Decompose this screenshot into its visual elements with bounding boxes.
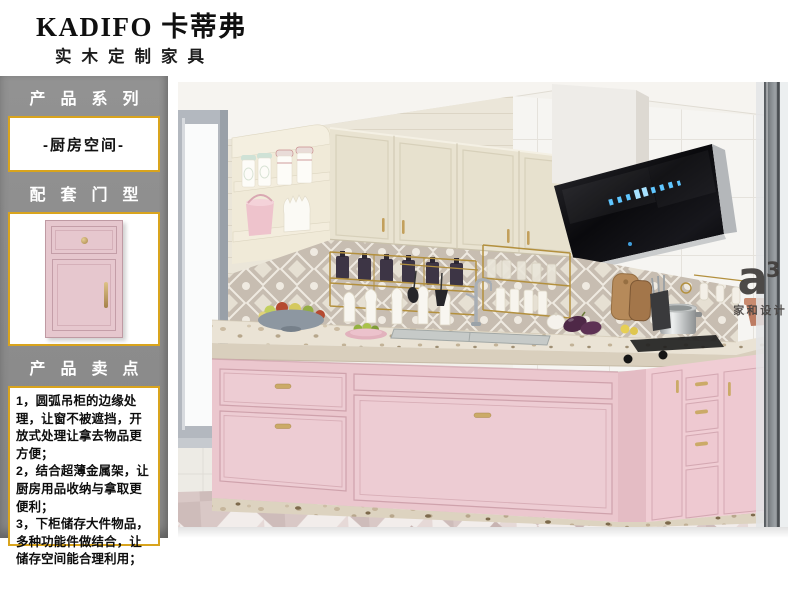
lemon xyxy=(621,325,630,334)
page: KADIFO 卡蒂弗 实木定制家具 产品系列 -厨房空间- 配套门型 产品卖点 … xyxy=(0,0,800,600)
door-drawer xyxy=(51,226,117,254)
pink-bucket xyxy=(246,195,274,236)
photo-bottom-shadow xyxy=(178,527,788,538)
white-vase xyxy=(284,195,311,232)
selling-point-1: 1，圆弧吊柜的边缘处理，让窗不被遮挡，开放式处理让拿去物品更方便； xyxy=(16,393,152,463)
series-box: -厨房空间- xyxy=(8,116,160,172)
series-value: -厨房空间- xyxy=(43,134,125,155)
door-thumbnail xyxy=(45,220,123,338)
door-panel xyxy=(52,259,116,331)
kitchen-scene xyxy=(178,82,788,527)
section-title-door-type: 配套门型 xyxy=(0,181,168,205)
designer-watermark: a3 家和设计 xyxy=(720,256,798,318)
kettle xyxy=(547,315,565,330)
selling-point-3: 3，下柜储存大件物品，多种功能件做结合，让储存空间能合理利用； xyxy=(16,516,152,569)
door-knob xyxy=(81,237,88,244)
watermark-logo: a3 xyxy=(720,256,798,301)
door-panel-inset xyxy=(57,264,111,326)
kitchen-photo xyxy=(178,82,788,527)
corner-shelf xyxy=(232,125,330,264)
sidebar: 产品系列 -厨房空间- 配套门型 产品卖点 1，圆弧吊柜的边缘处理，让窗不被遮挡… xyxy=(0,76,168,538)
watermark-letter: a xyxy=(738,252,766,305)
selling-point-2: 2，结合超薄金属架，让厨房用品收纳与拿取更便利； xyxy=(16,463,152,516)
selling-points-box: 1，圆弧吊柜的边缘处理，让窗不被遮挡，开放式处理让拿去物品更方便； 2，结合超薄… xyxy=(8,386,160,546)
watermark-label: 家和设计 xyxy=(720,302,798,318)
brand-subtitle: 实木定制家具 xyxy=(55,43,214,67)
watermark-sup: 3 xyxy=(766,258,781,282)
hob-knob xyxy=(659,351,668,360)
lemon xyxy=(630,327,638,335)
base-cabinets xyxy=(212,353,770,522)
hob-knob xyxy=(624,355,633,364)
section-title-series: 产品系列 xyxy=(0,85,168,109)
brand-title: KADIFO 卡蒂弗 xyxy=(36,5,247,44)
door-type-box xyxy=(8,212,160,346)
section-title-selling-points: 产品卖点 xyxy=(0,355,168,379)
door-handle xyxy=(104,282,108,308)
